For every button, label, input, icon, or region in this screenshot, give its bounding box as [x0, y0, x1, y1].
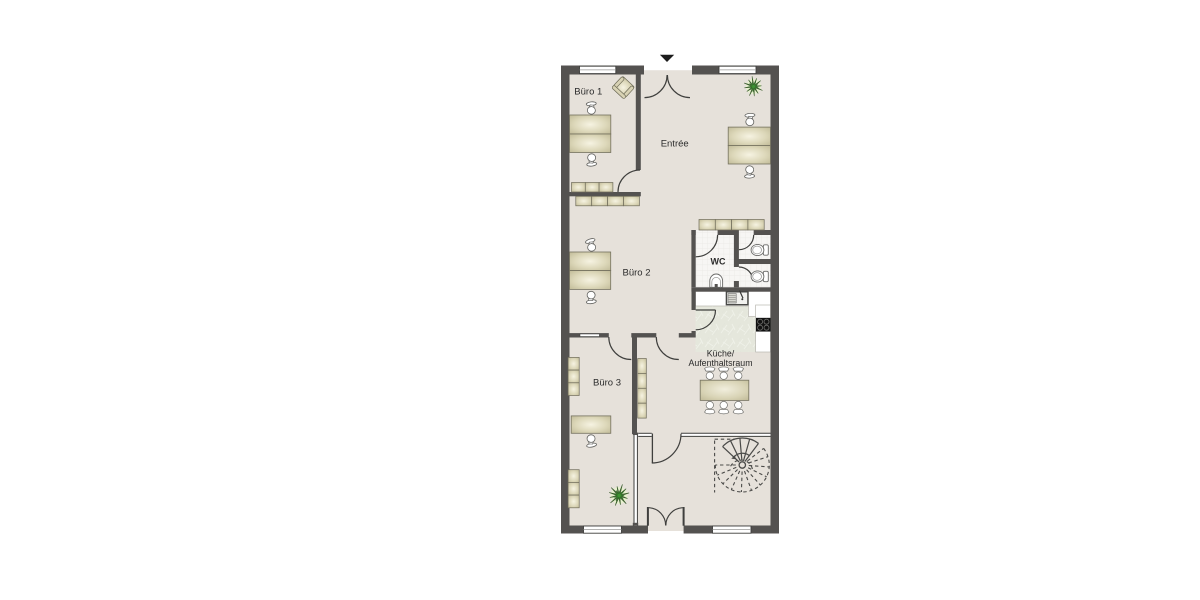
svg-text:Büro 2: Büro 2: [623, 268, 651, 279]
svg-text:Büro 3: Büro 3: [593, 378, 621, 389]
svg-text:Büro 1: Büro 1: [574, 87, 602, 98]
svg-text:Entrée: Entrée: [661, 139, 689, 150]
svg-text:Aufenthaltsraum: Aufenthaltsraum: [688, 358, 752, 368]
svg-text:WC: WC: [711, 256, 726, 266]
